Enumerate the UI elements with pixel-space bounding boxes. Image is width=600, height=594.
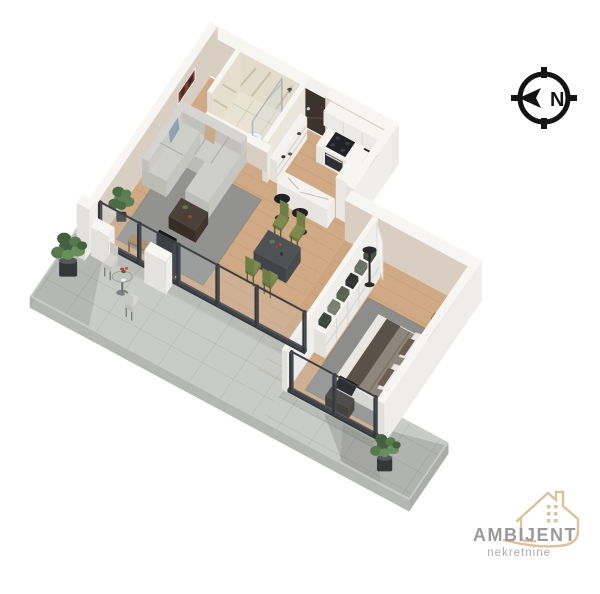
compass-tick-east xyxy=(566,95,577,101)
apartment-3d-scene xyxy=(30,22,482,512)
compass-tick-north xyxy=(541,67,547,78)
floorplan-render: N AMBIJENT nekretnine xyxy=(0,0,600,594)
compass-icon: N xyxy=(511,67,577,129)
compass-label: N xyxy=(550,89,564,111)
compass-tick-south xyxy=(541,118,547,129)
ambijent-logo: AMBIJENT nekretnine xyxy=(473,492,578,559)
house-windows-icon xyxy=(547,505,558,523)
brand-subtitle: nekretnine xyxy=(487,547,551,559)
brand-name: AMBIJENT xyxy=(473,525,577,545)
